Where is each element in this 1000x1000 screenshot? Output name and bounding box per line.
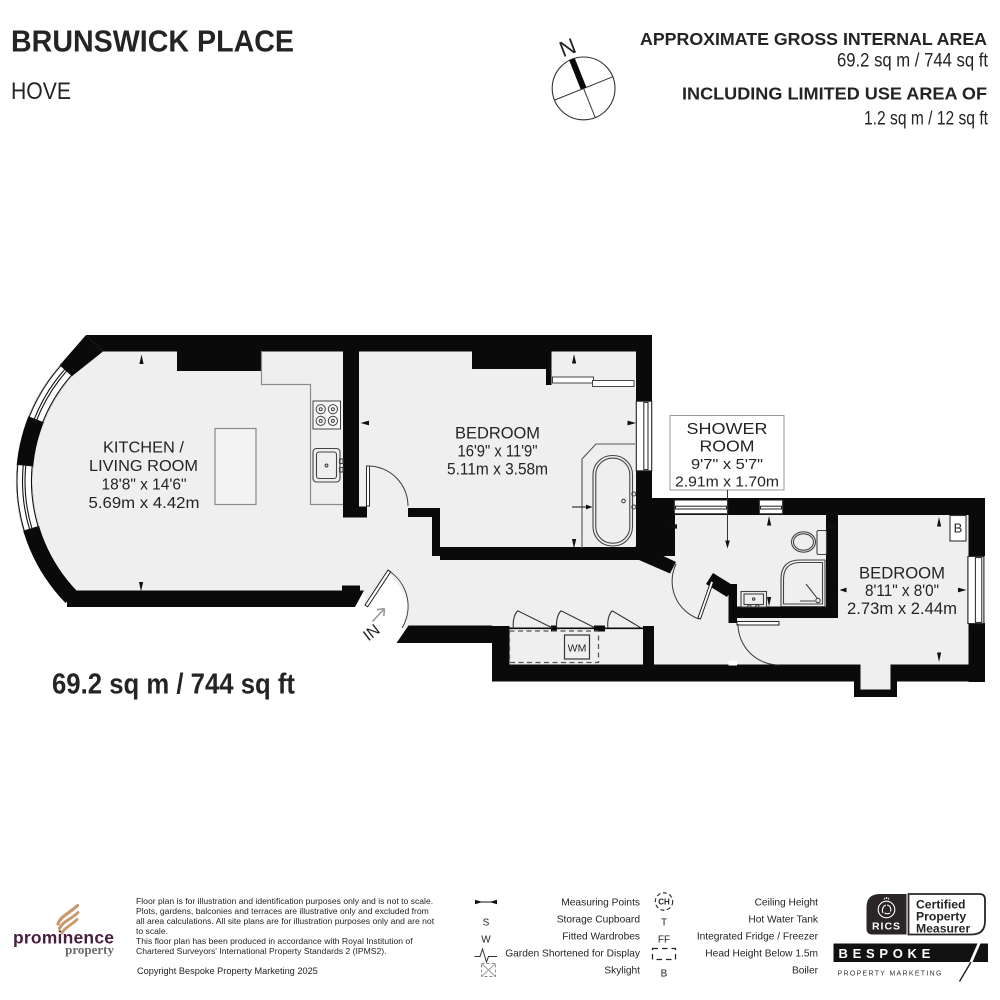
svg-text:SHOWER: SHOWER (687, 421, 768, 438)
svg-text:1.2 sq m / 12 sq ft: 1.2 sq m / 12 sq ft (864, 109, 989, 130)
svg-text:INCLUDING LIMITED USE AREA OF: INCLUDING LIMITED USE AREA OF (682, 84, 987, 104)
svg-text:LIVING ROOM: LIVING ROOM (89, 458, 198, 475)
svg-text:9'7" x 5'7": 9'7" x 5'7" (691, 456, 763, 473)
svg-text:B: B (661, 969, 668, 980)
svg-text:Integrated Fridge / Freezer: Integrated Fridge / Freezer (697, 932, 819, 943)
svg-text:B: B (954, 521, 963, 536)
svg-text:BEDROOM: BEDROOM (859, 565, 945, 583)
svg-text:5.69m x 4.42m: 5.69m x 4.42m (89, 495, 200, 512)
svg-text:This floor plan has been produ: This floor plan has been produced in acc… (136, 936, 413, 946)
svg-text:69.2 sq m / 744 sq ft: 69.2 sq m / 744 sq ft (52, 669, 295, 701)
svg-text:16'9" x 11'9": 16'9" x 11'9" (458, 443, 538, 461)
svg-text:ROOM: ROOM (700, 439, 755, 456)
svg-text:Copyright Bespoke Property Mar: Copyright Bespoke Property Marketing 202… (137, 966, 318, 976)
svg-text:T: T (661, 918, 667, 929)
svg-text:Measuring Points: Measuring Points (561, 898, 640, 909)
svg-text:Skylight: Skylight (604, 966, 640, 977)
svg-text:FF: FF (658, 935, 670, 946)
svg-text:BESPOKE: BESPOKE (839, 946, 935, 961)
svg-text:S: S (483, 918, 490, 929)
svg-text:Garden Shortened for Display: Garden Shortened for Display (505, 949, 641, 960)
svg-text:IN: IN (360, 622, 383, 645)
svg-text:Floor plan is for illustration: Floor plan is for illustration and ident… (136, 896, 433, 906)
svg-text:5.11m x 3.58m: 5.11m x 3.58m (447, 461, 548, 479)
svg-text:PROPERTY MARKETING: PROPERTY MARKETING (838, 971, 943, 978)
svg-text:Fitted Wardrobes: Fitted Wardrobes (562, 932, 640, 943)
svg-text:CH: CH (658, 898, 670, 907)
svg-text:HOVE: HOVE (11, 78, 71, 105)
svg-text:2.73m x 2.44m: 2.73m x 2.44m (847, 600, 957, 618)
svg-text:8'11" x 8'0": 8'11" x 8'0" (865, 582, 939, 600)
svg-text:2.91m x 1.70m: 2.91m x 1.70m (675, 474, 779, 491)
svg-text:Storage Cupboard: Storage Cupboard (557, 915, 641, 926)
svg-text:Plots, gardens, balconies and: Plots, gardens, balconies and terraces a… (136, 906, 429, 916)
svg-text:property: property (65, 942, 114, 957)
svg-text:RICS: RICS (872, 921, 901, 933)
svg-text:BRUNSWICK PLACE: BRUNSWICK PLACE (11, 24, 294, 59)
svg-text:Measurer: Measurer (916, 922, 970, 936)
svg-text:69.2 sq m / 744 sq ft: 69.2 sq m / 744 sq ft (837, 51, 989, 72)
svg-text:Hot Water Tank: Hot Water Tank (748, 915, 819, 926)
svg-text:Ceiling Height: Ceiling Height (755, 898, 819, 909)
svg-text:KITCHEN /: KITCHEN / (103, 440, 185, 457)
svg-text:to scale.: to scale. (136, 926, 168, 936)
svg-text:Boiler: Boiler (792, 966, 819, 977)
svg-text:all area calculations. All si: all area calculations. All site plans ar… (136, 916, 435, 926)
svg-text:W: W (481, 935, 491, 946)
svg-text:WM: WM (568, 643, 587, 655)
svg-text:N: N (556, 33, 580, 62)
svg-text:Chartered Surveyors' Internati: Chartered Surveyors' International Prope… (136, 946, 387, 956)
svg-text:BEDROOM: BEDROOM (455, 425, 540, 443)
svg-text:APPROXIMATE GROSS INTERNAL ARE: APPROXIMATE GROSS INTERNAL AREA (640, 29, 988, 49)
svg-text:18'8" x 14'6": 18'8" x 14'6" (102, 477, 187, 494)
svg-text:Head Height Below 1.5m: Head Height Below 1.5m (705, 949, 818, 960)
